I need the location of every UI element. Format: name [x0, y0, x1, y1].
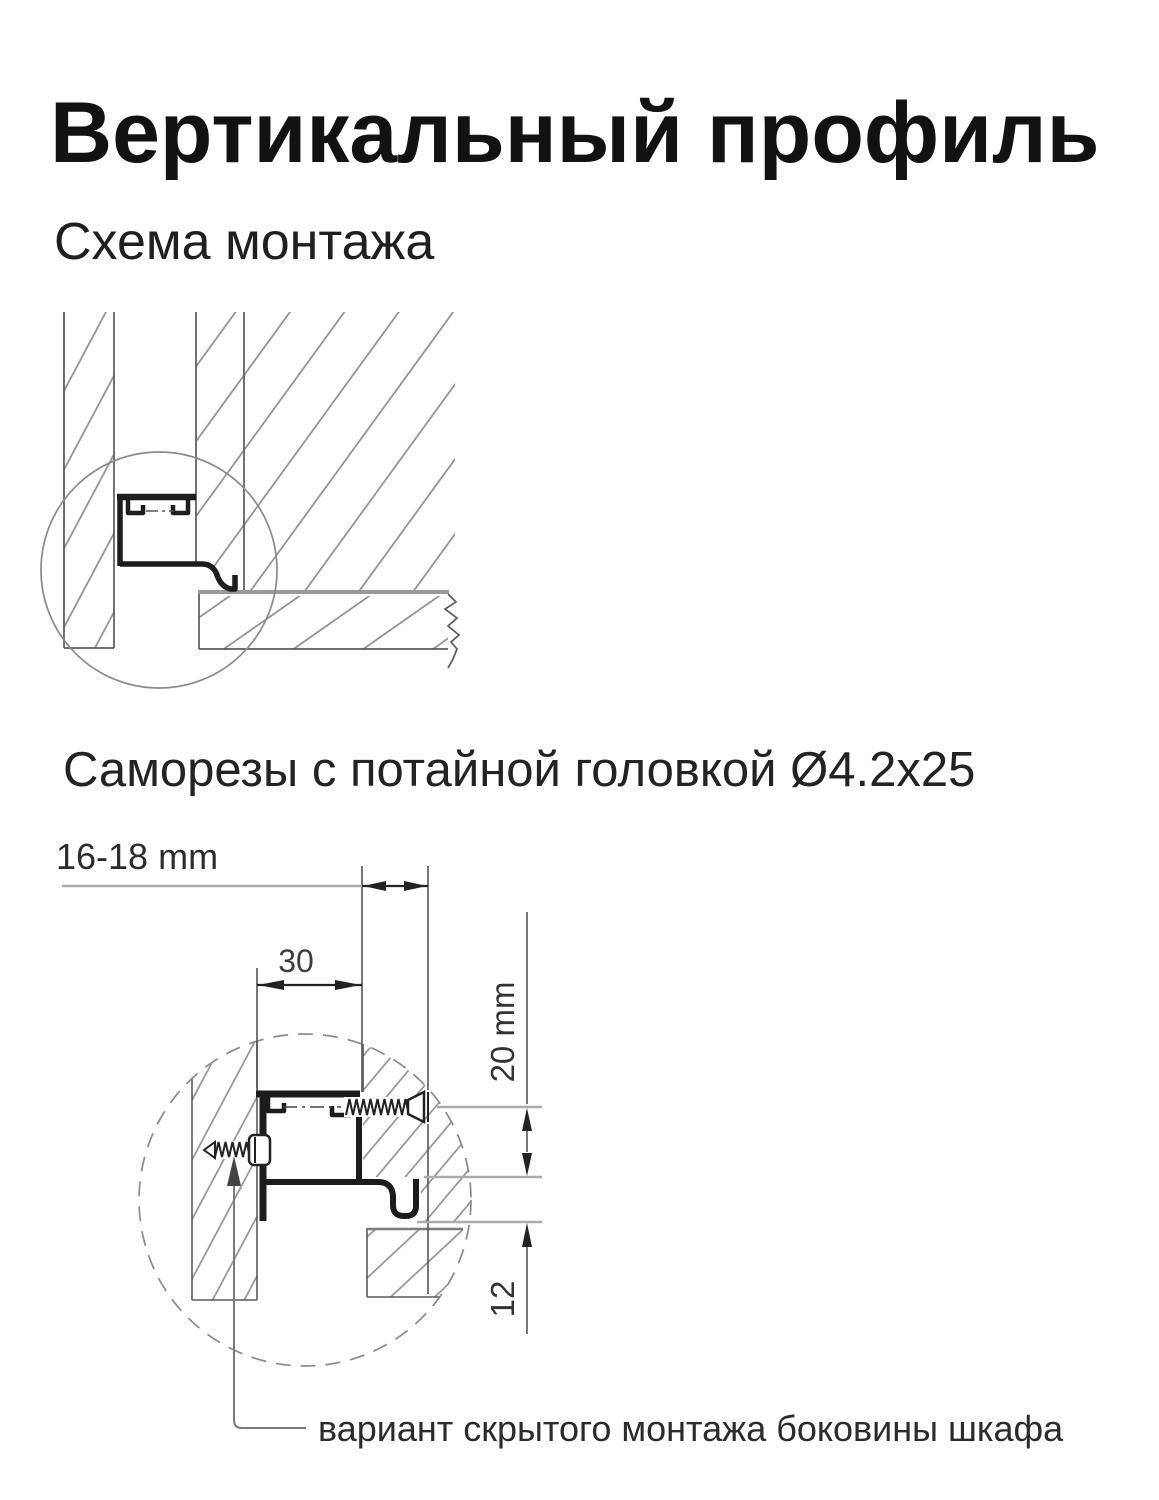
wall-block-left — [192, 1040, 257, 1300]
bottom-panel-section — [367, 1228, 463, 1297]
shelf-panel — [198, 592, 459, 668]
dim-panel-thickness: 16-18 mm — [56, 836, 428, 891]
dim-profile-width: 30 — [257, 943, 362, 990]
screw-thread — [346, 1099, 409, 1115]
screw-head — [249, 1135, 270, 1165]
reference-lines — [62, 886, 542, 1222]
dim-screw-offset-label: 20 mm — [484, 982, 521, 1083]
wall-right-section — [196, 312, 455, 592]
dim-bottom-clearance-label: 12 — [484, 1281, 521, 1318]
screws-heading: Саморезы с потайной головкой Ø4.2x25 — [63, 742, 975, 798]
section-subtitle-mounting-scheme: Схема монтажа — [54, 212, 434, 272]
dim-profile-width-label: 30 — [278, 943, 314, 979]
dim-vertical-group: 20 mm 12 — [484, 982, 532, 1318]
detail-diagram: 16-18 mm 30 20 mm 12 — [40, 835, 585, 1450]
dim-panel-thickness-label: 16-18 mm — [56, 836, 218, 877]
mounting-scheme-diagram — [30, 300, 475, 725]
wall-left-section — [64, 312, 114, 648]
page-title: Вертикальный профиль — [50, 84, 1140, 183]
leader-caption: вариант скрытого монтажа боковины шкафа — [318, 1408, 1063, 1450]
